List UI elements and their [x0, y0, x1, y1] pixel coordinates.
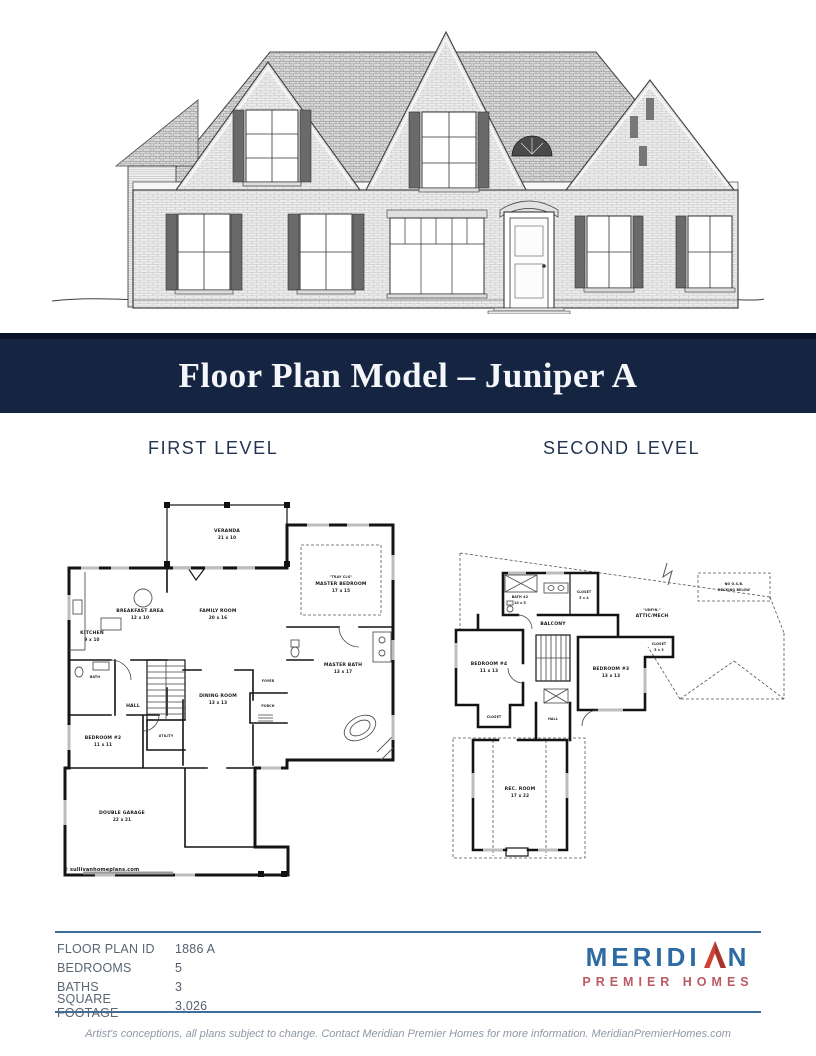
- page-title: Floor Plan Model – Juniper A: [0, 339, 816, 413]
- svg-text:20 x 16: 20 x 16: [209, 615, 227, 620]
- svg-text:9 x 10: 9 x 10: [84, 637, 99, 642]
- svg-text:11 x 11: 11 x 11: [94, 742, 112, 747]
- triple-window: [387, 210, 487, 298]
- spec-label: SQUARE FOOTAGE: [57, 992, 175, 1020]
- room-label: HALL: [548, 717, 558, 721]
- room-label: VERANDA 21 x 10: [214, 528, 240, 540]
- svg-text:CLOSET: CLOSET: [652, 642, 667, 646]
- plan-copyright: © sullivanhomeplans.com: [63, 867, 139, 873]
- room-label: DINING ROOM 13 x 13: [199, 693, 237, 705]
- svg-text:FOYER: FOYER: [262, 679, 275, 683]
- tray-ceiling-outline: [301, 545, 381, 615]
- room-label: BEDROOM #3 13 x 13: [593, 666, 630, 678]
- svg-text:ATTIC/MECH: ATTIC/MECH: [636, 613, 669, 619]
- peak-arrow-icon: [703, 941, 727, 969]
- spec-table: FLOOR PLAN ID 1886 A BEDROOMS 5 BATHS 3 …: [57, 939, 215, 1015]
- room-label: REC. ROOM 17 x 22: [505, 786, 536, 798]
- svg-text:HALL: HALL: [548, 717, 558, 721]
- spec-value: 3: [175, 980, 182, 994]
- spec-row: FLOOR PLAN ID 1886 A: [57, 939, 215, 958]
- room-label: FAMILY ROOM 20 x 16: [199, 608, 236, 620]
- room-label: BEDROOM #2 11 x 11: [85, 735, 122, 747]
- svg-text:CLOSET: CLOSET: [577, 590, 592, 594]
- second-level-heading: SECOND LEVEL: [543, 438, 700, 459]
- svg-text:"UNFIN.": "UNFIN.": [643, 608, 661, 612]
- first-level-heading: FIRST LEVEL: [148, 438, 278, 459]
- room-label: BATH: [90, 675, 100, 679]
- svg-text:"TRAY CLG": "TRAY CLG": [330, 575, 353, 579]
- room-label: NO O.S.B. DECKING BELOW: [718, 582, 750, 592]
- svg-text:DECKING BELOW: DECKING BELOW: [718, 588, 750, 592]
- svg-text:MASTER BEDROOM: MASTER BEDROOM: [315, 581, 367, 587]
- svg-text:FAMILY ROOM: FAMILY ROOM: [199, 608, 236, 614]
- room-label: MASTER BATH 13 x 17: [324, 662, 362, 674]
- svg-text:NO O.S.B.: NO O.S.B.: [725, 582, 744, 586]
- svg-text:BEDROOM #4: BEDROOM #4: [471, 661, 508, 667]
- room-label: BREAKFAST AREA 12 x 10: [116, 608, 164, 620]
- porch-steps: [258, 715, 273, 721]
- svg-text:REC. ROOM: REC. ROOM: [505, 786, 536, 792]
- spec-label: FLOOR PLAN ID: [57, 942, 175, 956]
- room-label: UTILITY: [159, 734, 174, 738]
- second-level-floor-plan: BATH #2 10 x 5 CLOSET 5 x 4 BALCONY BEDR…: [448, 543, 793, 888]
- room-label: FOYER: [262, 679, 275, 683]
- title-banner: Floor Plan Model – Juniper A: [0, 333, 816, 413]
- fireplace: [188, 568, 205, 580]
- room-label: BEDROOM #4 11 x 13: [471, 661, 508, 673]
- brand-tagline: PREMIER HOMES: [568, 975, 768, 989]
- master-bath-fixtures: [291, 632, 393, 760]
- stairs-upper: [536, 635, 570, 703]
- svg-text:13 x 13: 13 x 13: [209, 700, 227, 705]
- svg-text:BEDROOM #3: BEDROOM #3: [593, 666, 630, 672]
- room-label: PORCH: [261, 704, 274, 708]
- spec-label: BEDROOMS: [57, 961, 175, 975]
- room-label: "UNFIN." ATTIC/MECH: [636, 608, 669, 619]
- room-label: CLOSET: [487, 715, 502, 719]
- spec-value: 3,026: [175, 999, 207, 1013]
- first-level-floor-plan: VERANDA 21 x 10 BREAKFAST AREA 12 x 10 K…: [55, 500, 395, 885]
- svg-text:11 x 13: 11 x 13: [480, 668, 498, 673]
- brand-name-end: N: [728, 942, 751, 972]
- brand-name: MERIDIN: [568, 941, 768, 972]
- svg-text:BATH #2: BATH #2: [512, 595, 529, 599]
- svg-text:BALCONY: BALCONY: [540, 621, 566, 627]
- svg-text:5 x 3: 5 x 3: [654, 648, 663, 652]
- room-label: KITCHEN 9 x 10: [80, 630, 104, 642]
- svg-text:DOUBLE GARAGE: DOUBLE GARAGE: [99, 810, 145, 816]
- svg-text:12 x 10: 12 x 10: [131, 615, 149, 620]
- brand-logo: MERIDIN PREMIER HOMES: [568, 941, 768, 989]
- room-label: BALCONY: [540, 621, 566, 627]
- footer-top-rule: [55, 931, 761, 933]
- svg-text:CLOSET: CLOSET: [487, 715, 502, 719]
- first-floor-window-d: [575, 216, 643, 292]
- brand-name-start: MERIDI: [586, 942, 701, 972]
- svg-text:HALL: HALL: [126, 703, 140, 709]
- flyer-page: Floor Plan Model – Juniper A FIRST LEVEL…: [0, 0, 816, 1056]
- spec-row: BEDROOMS 5: [57, 958, 215, 977]
- spec-row: SQUARE FOOTAGE 3,026: [57, 996, 215, 1015]
- svg-text:DINING ROOM: DINING ROOM: [199, 693, 237, 699]
- first-floor-window-e: [676, 216, 744, 292]
- svg-text:BREAKFAST AREA: BREAKFAST AREA: [116, 608, 164, 614]
- room-label: "TRAY CLG" MASTER BEDROOM 17 x 15: [315, 575, 367, 593]
- svg-text:22 x 21: 22 x 21: [113, 817, 131, 822]
- svg-text:MASTER BATH: MASTER BATH: [324, 662, 362, 668]
- svg-text:21 x 10: 21 x 10: [218, 535, 236, 540]
- room-label: DOUBLE GARAGE 22 x 21: [99, 810, 145, 822]
- svg-text:5 x 4: 5 x 4: [579, 596, 589, 600]
- svg-text:VERANDA: VERANDA: [214, 528, 240, 534]
- svg-text:10 x 5: 10 x 5: [514, 601, 526, 605]
- svg-text:17 x 22: 17 x 22: [511, 793, 529, 798]
- room-label: BATH #2 10 x 5: [512, 595, 529, 605]
- svg-text:UTILITY: UTILITY: [159, 734, 174, 738]
- rec-room-notch: [506, 848, 528, 856]
- room-label: CLOSET 5 x 3: [652, 642, 667, 652]
- house-elevation-drawing: [38, 4, 778, 314]
- spec-value: 1886 A: [175, 942, 215, 956]
- svg-text:13 x 13: 13 x 13: [602, 673, 620, 678]
- room-label: CLOSET 5 x 4: [577, 590, 592, 600]
- svg-text:13 x 17: 13 x 17: [334, 669, 352, 674]
- bath2-fixtures: [505, 575, 568, 612]
- svg-text:KITCHEN: KITCHEN: [80, 630, 104, 636]
- stairs: [147, 660, 185, 720]
- svg-text:17 x 15: 17 x 15: [332, 588, 350, 593]
- spec-value: 5: [175, 961, 182, 975]
- svg-text:PORCH: PORCH: [261, 704, 274, 708]
- disclaimer-text: Artist's conceptions, all plans subject …: [0, 1028, 816, 1040]
- svg-text:BATH: BATH: [90, 675, 100, 679]
- svg-text:BEDROOM #2: BEDROOM #2: [85, 735, 122, 741]
- room-label: HALL: [126, 703, 140, 709]
